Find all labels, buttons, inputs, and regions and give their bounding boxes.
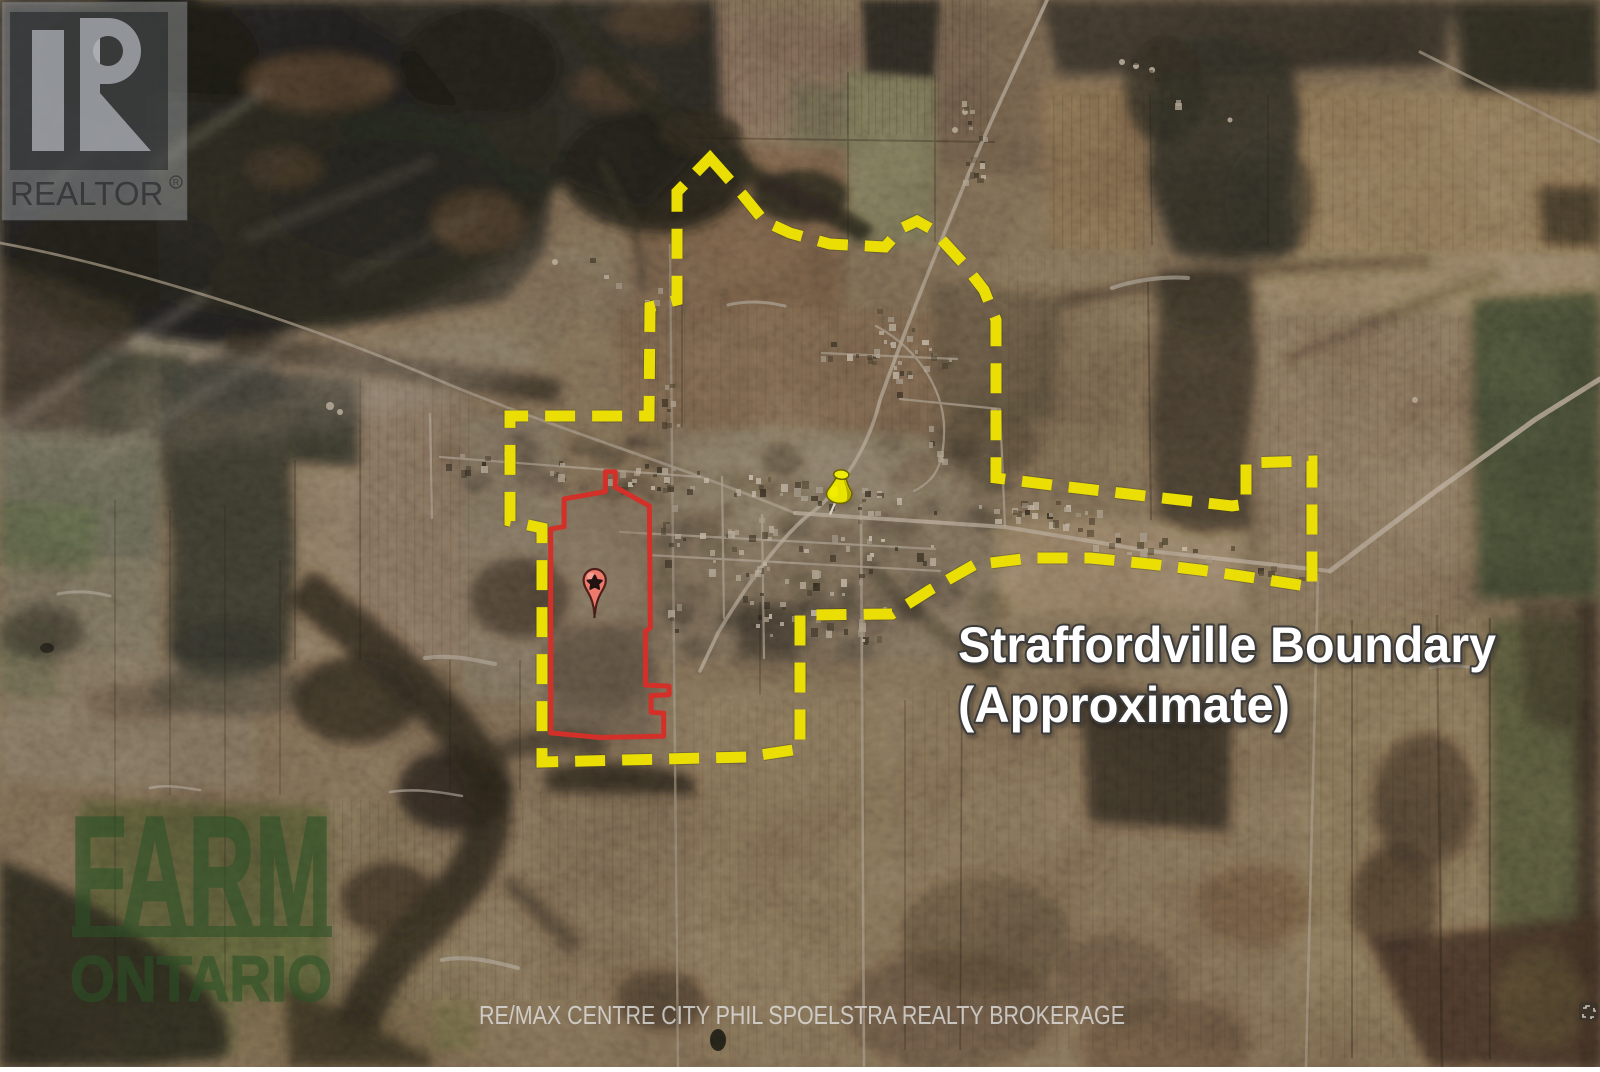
svg-text:(Approximate): (Approximate)	[958, 677, 1290, 733]
svg-text:RE/MAX CENTRE CITY PHIL SPOELS: RE/MAX CENTRE CITY PHIL SPOELSTRA REALTY…	[479, 1000, 1125, 1030]
svg-text:R: R	[173, 178, 180, 188]
svg-text:Straffordville Boundary: Straffordville Boundary	[958, 617, 1496, 673]
svg-text:REALTOR: REALTOR	[10, 175, 166, 212]
svg-text:ONTARIO: ONTARIO	[70, 943, 332, 1015]
